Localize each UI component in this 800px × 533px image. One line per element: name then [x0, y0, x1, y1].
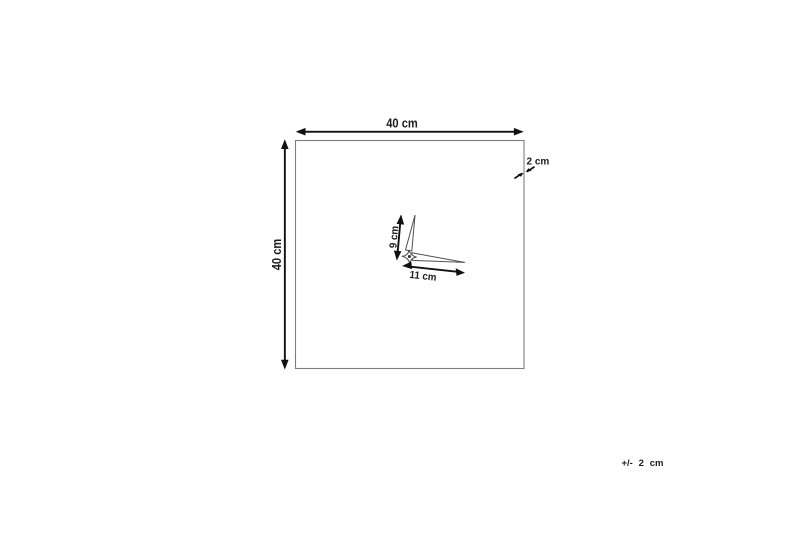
- svg-text:+/-2cm: +/-2cm: [622, 458, 664, 469]
- svg-text:40 cm: 40 cm: [386, 115, 418, 130]
- svg-text:9 cm: 9 cm: [387, 225, 401, 248]
- svg-text:40 cm: 40 cm: [269, 239, 284, 271]
- svg-text:2 cm: 2 cm: [527, 156, 550, 167]
